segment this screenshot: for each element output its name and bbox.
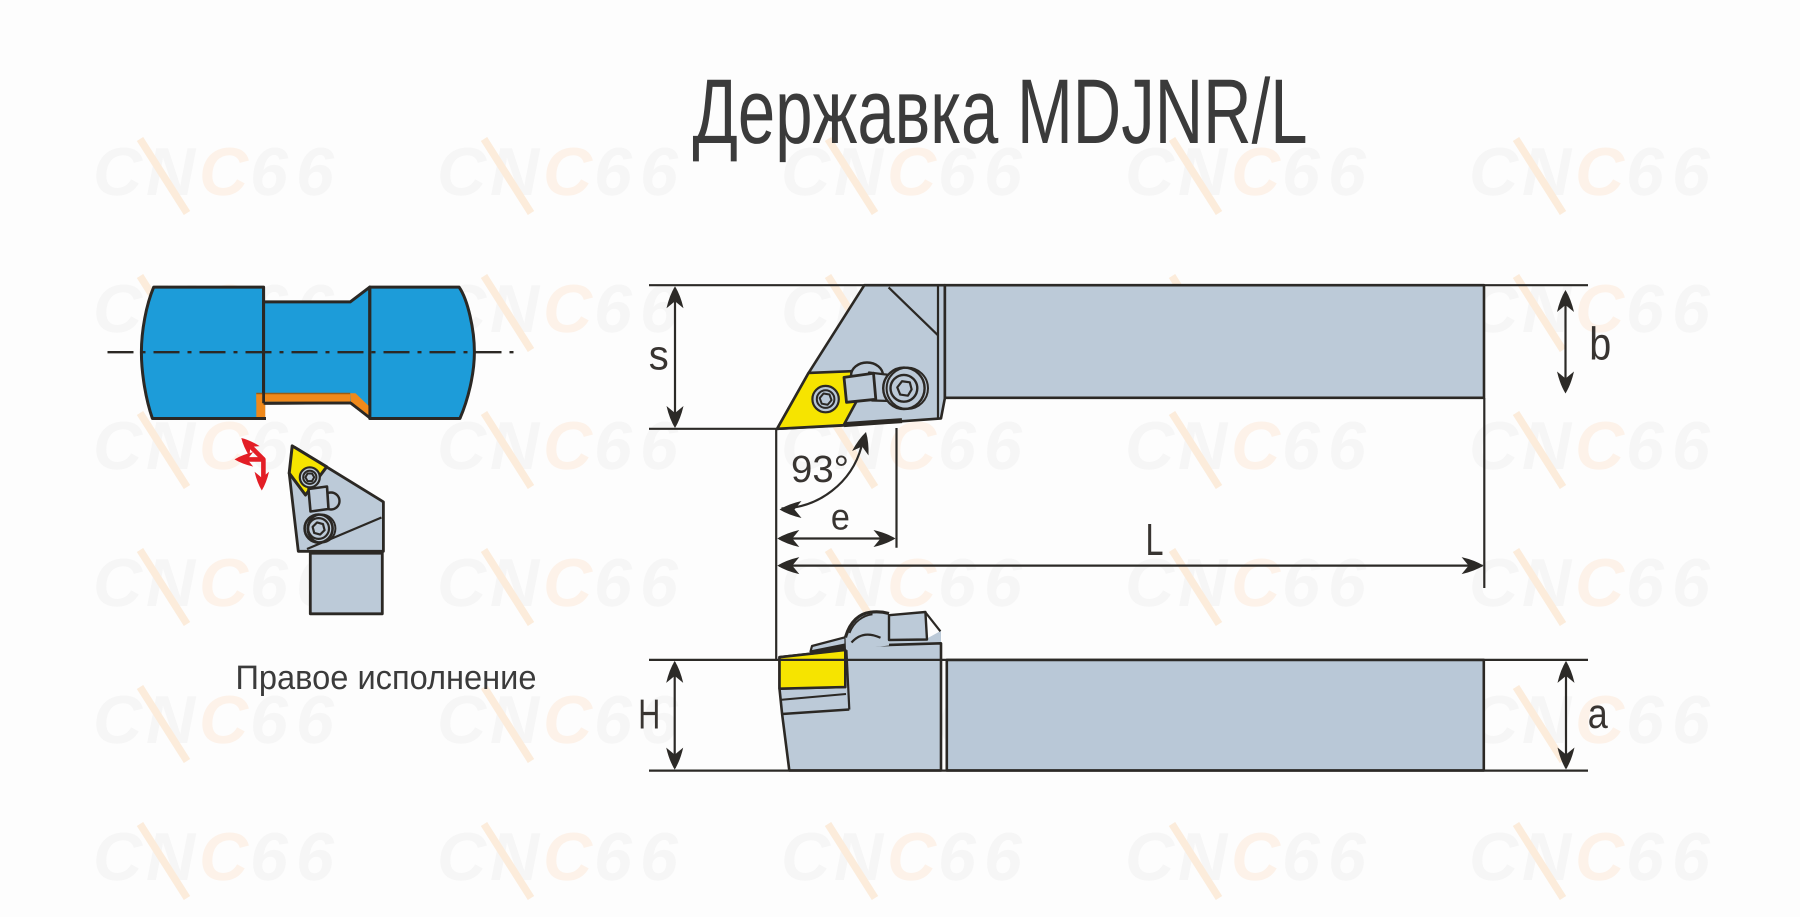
svg-text:Державка MDJNR/L: Державка MDJNR/L: [693, 61, 1308, 163]
svg-text:H: H: [638, 691, 660, 738]
svg-text:L: L: [1146, 514, 1164, 565]
svg-text:Правое исполнение: Правое исполнение: [236, 659, 537, 697]
svg-text:a: a: [1588, 690, 1609, 737]
svg-text:93°: 93°: [791, 449, 849, 491]
svg-text:b: b: [1589, 318, 1611, 370]
svg-text:e: e: [831, 496, 850, 537]
svg-text:s: s: [649, 332, 669, 379]
